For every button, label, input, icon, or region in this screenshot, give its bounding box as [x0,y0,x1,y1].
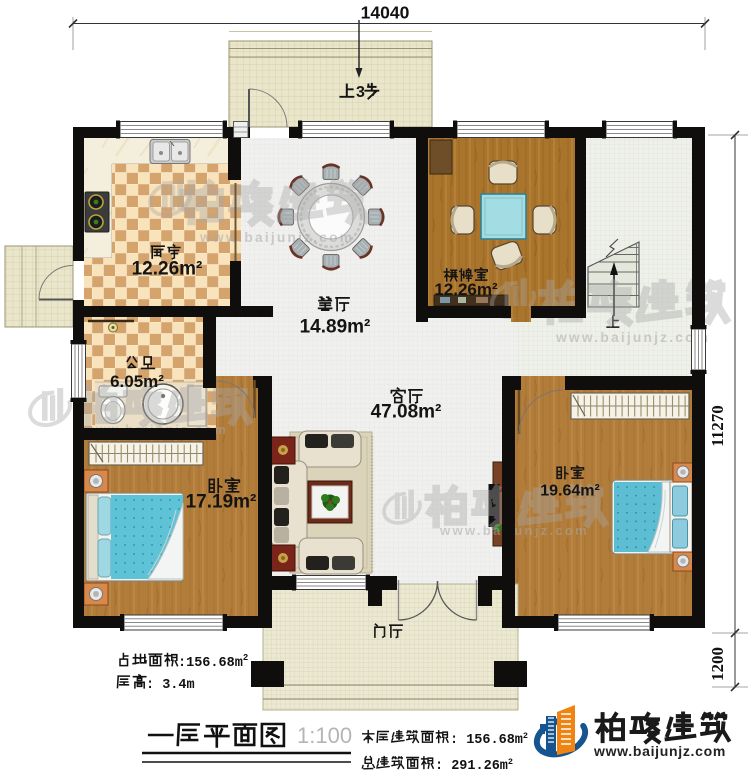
svg-text:47.08m²: 47.08m² [371,402,442,423]
svg-text:14040: 14040 [361,3,410,23]
svg-text:www.baijunjz.com: www.baijunjz.com [555,330,710,345]
svg-text:www.baijunjz.com: www.baijunjz.com [593,743,726,759]
svg-text:: 156.68m2: : 156.68m2 [450,731,528,748]
svg-text::156.68m2: :156.68m2 [178,653,248,671]
svg-text:: 291.26m2: : 291.26m2 [435,757,513,774]
svg-text:3: 3 [356,84,365,101]
svg-text:12.26m²: 12.26m² [132,259,203,280]
svg-text:14.89m²: 14.89m² [300,317,371,338]
svg-text:6.05m²: 6.05m² [110,372,164,391]
svg-text:www.baijunjz.com: www.baijunjz.com [199,230,354,245]
svg-text:1200: 1200 [708,647,727,681]
svg-text:11270: 11270 [708,405,727,447]
svg-text:: 3.4m: : 3.4m [146,678,195,693]
svg-text:12.26m²: 12.26m² [434,280,498,299]
svg-text:17.19m²: 17.19m² [186,492,257,513]
svg-text:1:100: 1:100 [297,723,352,748]
svg-text:19.64m²: 19.64m² [540,483,600,500]
